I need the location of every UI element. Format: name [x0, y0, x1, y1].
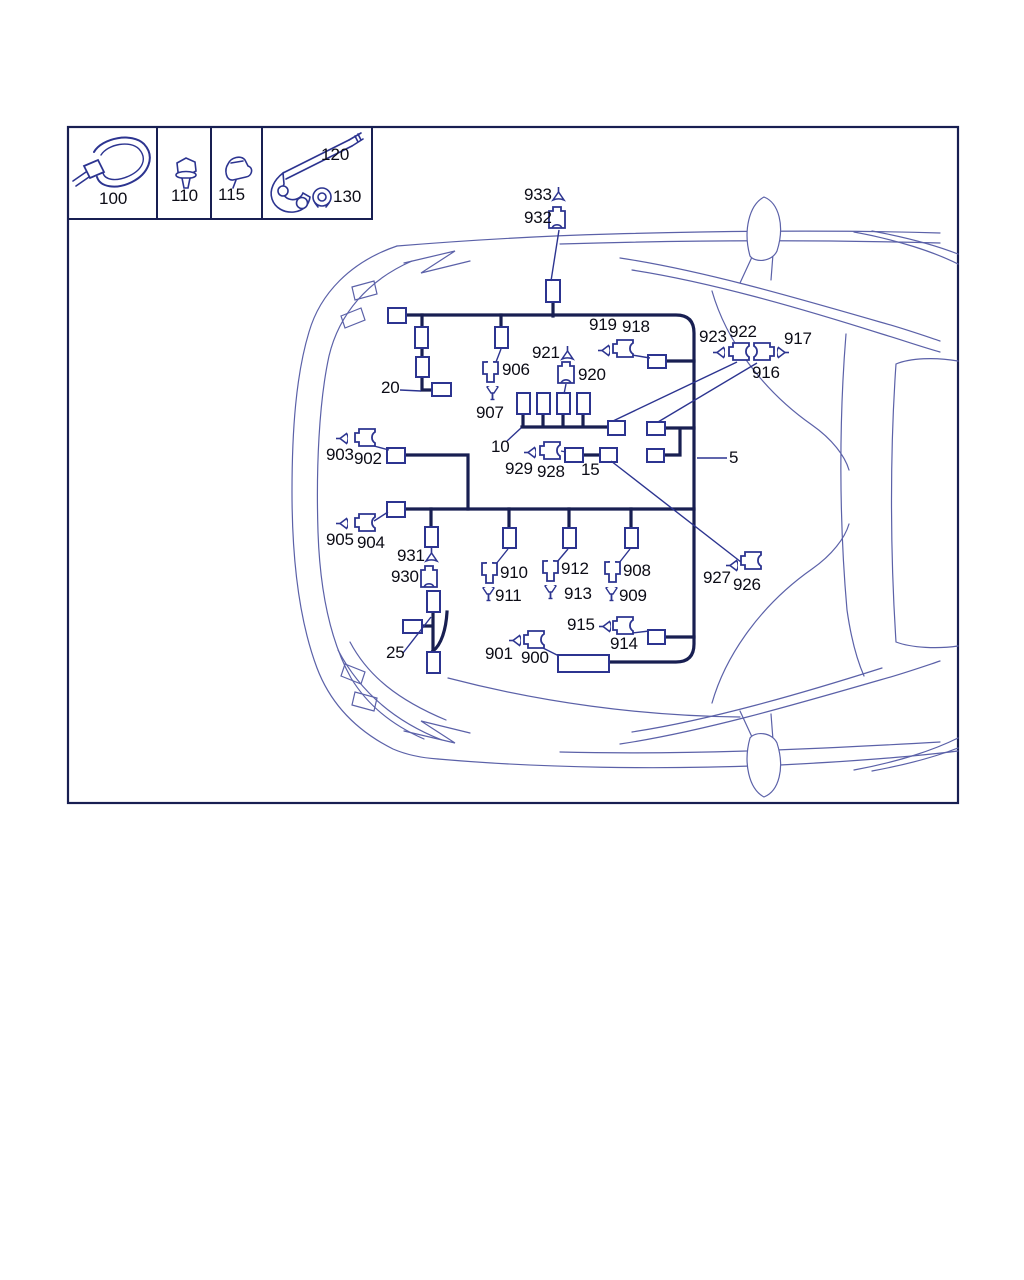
clip-icon — [226, 157, 252, 188]
car-shoulder — [872, 748, 958, 771]
part-label-918: 918 — [622, 318, 650, 335]
part-icon-930 — [421, 566, 437, 587]
car-mirror — [747, 197, 780, 260]
legend-label-130: 130 — [333, 188, 361, 205]
cable-tie-icon — [73, 138, 150, 187]
connector-rect — [537, 393, 550, 414]
part-label-932: 932 — [524, 209, 552, 226]
connector-rect — [648, 630, 665, 644]
part-label-921: 921 — [532, 344, 560, 361]
connector-rect — [557, 393, 570, 414]
part-icon-916 — [754, 343, 774, 360]
leader-line — [561, 451, 566, 452]
part-icon-920 — [558, 362, 574, 383]
legend-label-100: 100 — [99, 190, 127, 207]
bolt-icon — [313, 188, 331, 207]
part-label-904: 904 — [357, 534, 385, 551]
connector-rect — [388, 308, 406, 323]
connector-rect — [425, 527, 438, 547]
connector-rect — [495, 327, 508, 348]
parts-diagram-page: 100 110 115 120 130 93393292192090690791… — [0, 0, 1024, 1280]
part-label-927: 927 — [703, 569, 731, 586]
leader-line — [400, 390, 421, 391]
car-wiper — [404, 721, 470, 743]
part-label-931: 931 — [397, 547, 425, 564]
car-cowl-line — [620, 661, 940, 744]
part-label-912: 912 — [561, 560, 589, 577]
connector-rect — [517, 393, 530, 414]
part-icon-933 — [553, 187, 564, 200]
connector-rect — [403, 620, 422, 633]
part-label-922: 922 — [729, 323, 757, 340]
connector-rect — [427, 591, 440, 612]
connector-rect — [503, 528, 516, 548]
screw-icon — [176, 158, 196, 188]
part-label-903: 903 — [326, 446, 354, 463]
part-label-926: 926 — [733, 576, 761, 593]
part-label-923: 923 — [699, 328, 727, 345]
part-icon-926 — [741, 552, 761, 569]
part-label-902: 902 — [354, 450, 382, 467]
part-label-913: 913 — [564, 585, 592, 602]
leader-line — [374, 512, 388, 521]
connector-rect — [563, 528, 576, 548]
part-label-905: 905 — [326, 531, 354, 548]
part-label-906: 906 — [502, 361, 530, 378]
part-label-917: 917 — [784, 330, 812, 347]
part-label-911: 911 — [495, 587, 522, 604]
connector-rect — [648, 355, 666, 368]
part-icon-904 — [355, 514, 375, 531]
connector-rect — [647, 422, 665, 435]
leader-line — [551, 230, 559, 281]
part-label-914: 914 — [610, 635, 638, 652]
connector-rect — [625, 528, 638, 548]
car-fender-detail — [352, 692, 377, 711]
part-label-900: 900 — [521, 649, 549, 666]
car-mirror — [747, 734, 780, 797]
part-label-907: 907 — [476, 404, 504, 421]
connector-rect — [600, 448, 617, 462]
connector-rect — [415, 327, 428, 348]
legend-label-115: 115 — [218, 186, 245, 203]
connector-rect — [558, 655, 609, 672]
part-label-933: 933 — [524, 186, 552, 203]
part-icon-902 — [355, 429, 375, 446]
part-label-919: 919 — [589, 316, 617, 333]
part-label-916: 916 — [752, 364, 780, 381]
car-pillar — [841, 334, 864, 676]
part-icon-922 — [729, 343, 749, 360]
part-label-928: 928 — [537, 463, 565, 480]
part-label-15: 15 — [581, 461, 600, 478]
part-label-930: 930 — [391, 568, 419, 585]
part-label-929: 929 — [505, 460, 533, 477]
part-label-20: 20 — [381, 379, 400, 396]
part-label-5: 5 — [729, 449, 738, 466]
car-crease — [448, 678, 740, 717]
part-label-909: 909 — [619, 587, 647, 604]
part-label-920: 920 — [578, 366, 606, 383]
connector-rect — [647, 449, 664, 462]
part-label-908: 908 — [623, 562, 651, 579]
connector-rect — [387, 448, 405, 463]
connector-rect — [546, 280, 560, 302]
part-label-915: 915 — [567, 616, 595, 633]
car-wiper — [404, 251, 470, 273]
connector-rect — [577, 393, 590, 414]
car-cowl-line — [632, 668, 882, 732]
connector-rect — [416, 357, 429, 377]
part-label-901: 901 — [485, 645, 513, 662]
connector-rect — [608, 421, 625, 435]
part-label-25: 25 — [386, 644, 405, 661]
legend-label-110: 110 — [171, 187, 198, 204]
part-label-910: 910 — [500, 564, 528, 581]
legend-label-120: 120 — [321, 146, 349, 163]
connector-rect — [427, 652, 440, 673]
part-icon-923 — [713, 348, 725, 358]
connector-rect — [432, 383, 451, 396]
part-icon-905 — [336, 519, 348, 529]
part-icon-917 — [777, 348, 789, 358]
part-label-10: 10 — [491, 438, 510, 455]
car-windshield — [712, 524, 849, 703]
diagram-canvas — [0, 0, 1024, 1280]
car-roof — [892, 359, 959, 648]
connector-rect — [387, 502, 405, 517]
part-icon-903 — [336, 434, 348, 444]
